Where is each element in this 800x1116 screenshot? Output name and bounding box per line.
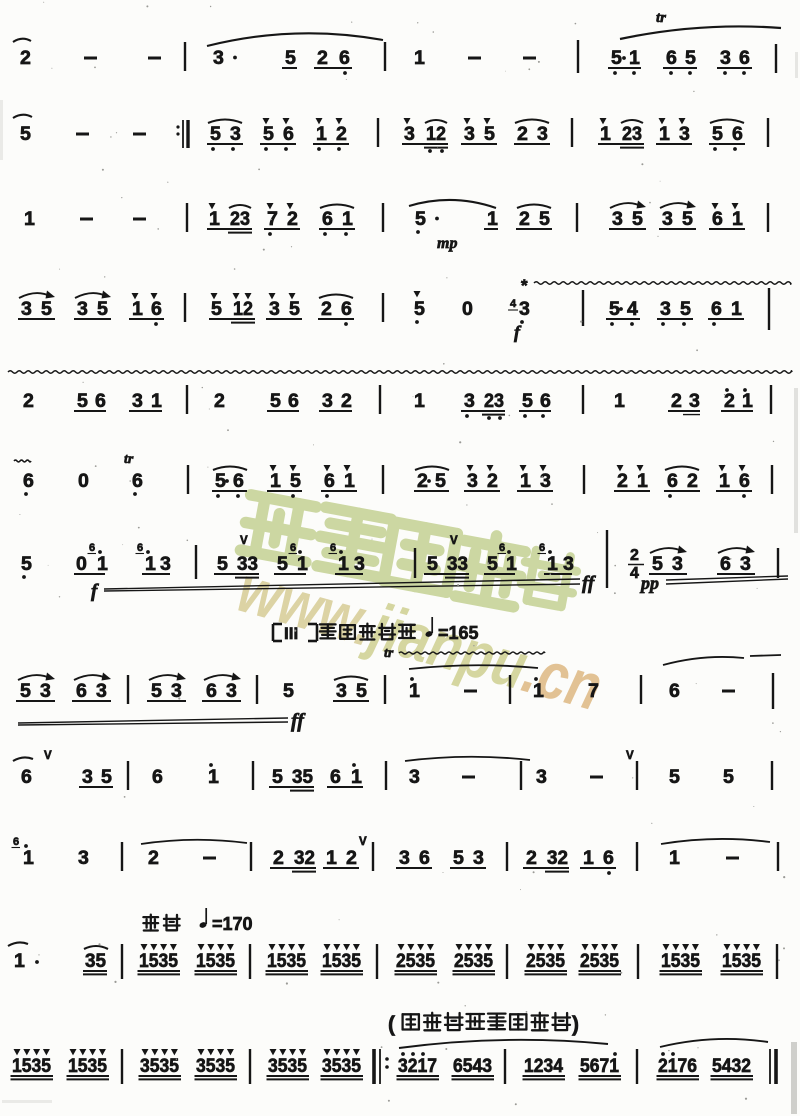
svg-text:5671: 5671 xyxy=(580,1055,619,1077)
svg-text:6: 6 xyxy=(21,766,32,788)
svg-text:3535: 3535 xyxy=(268,1055,307,1077)
svg-text:III: III xyxy=(284,624,298,643)
svg-text:3535: 3535 xyxy=(196,1055,235,1077)
svg-text:3: 3 xyxy=(537,123,548,145)
svg-text:5: 5 xyxy=(682,208,693,230)
svg-text:1: 1 xyxy=(506,553,517,575)
svg-text:6: 6 xyxy=(739,47,750,69)
svg-text:1: 1 xyxy=(23,847,34,869)
svg-text:1: 1 xyxy=(316,123,327,145)
svg-text:1: 1 xyxy=(270,470,281,492)
svg-text:5: 5 xyxy=(21,553,32,575)
svg-text:tr: tr xyxy=(384,646,394,661)
svg-text:6: 6 xyxy=(206,680,217,702)
svg-text:1: 1 xyxy=(414,47,425,69)
svg-text:1: 1 xyxy=(24,208,35,230)
svg-text:1: 1 xyxy=(547,553,558,575)
svg-text:2176: 2176 xyxy=(658,1055,697,1077)
svg-text:5: 5 xyxy=(263,123,274,145)
svg-text:3: 3 xyxy=(78,847,89,869)
svg-text:0: 0 xyxy=(462,298,473,320)
svg-text:1535: 1535 xyxy=(267,950,306,972)
svg-text:6: 6 xyxy=(89,542,95,554)
svg-text:2: 2 xyxy=(23,390,34,412)
svg-text:3: 3 xyxy=(404,123,415,145)
svg-text:3: 3 xyxy=(213,47,224,69)
svg-text:6: 6 xyxy=(666,47,677,69)
svg-text:2: 2 xyxy=(517,123,528,145)
svg-text:5: 5 xyxy=(356,680,367,702)
svg-text:1: 1 xyxy=(659,123,670,145)
svg-text:5: 5 xyxy=(272,766,283,788)
svg-text:3: 3 xyxy=(563,553,574,575)
svg-text:5: 5 xyxy=(77,390,88,412)
svg-text:5: 5 xyxy=(277,553,288,575)
svg-text:3: 3 xyxy=(409,766,420,788)
svg-text:1535: 1535 xyxy=(12,1055,51,1077)
svg-text:1: 1 xyxy=(151,390,162,412)
svg-text:6: 6 xyxy=(76,680,87,702)
svg-text:6: 6 xyxy=(23,470,34,492)
svg-text:1: 1 xyxy=(326,847,337,869)
svg-text:2: 2 xyxy=(273,847,284,869)
svg-text:2: 2 xyxy=(148,847,159,869)
svg-text:2: 2 xyxy=(417,470,428,492)
svg-text:1535: 1535 xyxy=(322,950,361,972)
svg-text:5: 5 xyxy=(151,680,162,702)
svg-text:5: 5 xyxy=(97,298,108,320)
svg-text:6: 6 xyxy=(330,766,341,788)
svg-text:=165: =165 xyxy=(438,623,479,643)
svg-text:5: 5 xyxy=(427,553,438,575)
svg-text:5: 5 xyxy=(453,847,464,869)
svg-text:(: ( xyxy=(388,1013,395,1036)
svg-text:5: 5 xyxy=(289,298,300,320)
svg-text:5: 5 xyxy=(539,208,550,230)
svg-text:3: 3 xyxy=(672,553,683,575)
svg-text:6: 6 xyxy=(540,390,551,412)
svg-text:1: 1 xyxy=(583,847,594,869)
svg-text:2: 2 xyxy=(630,547,639,564)
svg-text:5: 5 xyxy=(723,766,734,788)
svg-text:): ) xyxy=(572,1013,579,1036)
svg-text:1: 1 xyxy=(637,470,648,492)
svg-text:=170: =170 xyxy=(212,914,253,934)
svg-text:1: 1 xyxy=(487,208,498,230)
svg-text:6: 6 xyxy=(720,553,731,575)
svg-text:V: V xyxy=(450,535,458,547)
svg-text:5432: 5432 xyxy=(712,1055,751,1077)
svg-text:3: 3 xyxy=(132,390,143,412)
svg-text:1: 1 xyxy=(208,766,219,788)
svg-text:5: 5 xyxy=(270,390,281,412)
svg-text:*: * xyxy=(521,276,528,295)
svg-text:3: 3 xyxy=(82,766,93,788)
svg-text:6: 6 xyxy=(539,542,545,554)
svg-text:5: 5 xyxy=(217,553,228,575)
svg-text:2: 2 xyxy=(519,208,530,230)
svg-text:3: 3 xyxy=(464,123,475,145)
svg-text:35: 35 xyxy=(85,950,106,972)
svg-text:5: 5 xyxy=(484,123,495,145)
svg-text:32: 32 xyxy=(294,847,315,869)
svg-text:4: 4 xyxy=(630,565,639,582)
svg-text:6: 6 xyxy=(341,298,352,320)
svg-text:33: 33 xyxy=(237,553,258,575)
svg-text:1535: 1535 xyxy=(722,950,761,972)
svg-text:3: 3 xyxy=(21,298,32,320)
svg-text:6: 6 xyxy=(132,470,143,492)
svg-text:5: 5 xyxy=(487,553,498,575)
svg-text:3: 3 xyxy=(612,208,623,230)
svg-text:3: 3 xyxy=(399,847,410,869)
svg-text:1: 1 xyxy=(414,390,425,412)
svg-text:6: 6 xyxy=(739,470,750,492)
svg-text:2: 2 xyxy=(20,47,31,69)
svg-text:1: 1 xyxy=(731,298,742,320)
svg-text:3: 3 xyxy=(519,298,530,320)
svg-text:3: 3 xyxy=(354,553,365,575)
svg-text:5: 5 xyxy=(632,208,643,230)
svg-text:6: 6 xyxy=(288,390,299,412)
svg-text:5: 5 xyxy=(414,298,425,320)
svg-text:1535: 1535 xyxy=(661,950,700,972)
svg-text:1: 1 xyxy=(600,123,611,145)
svg-text:6: 6 xyxy=(290,542,296,554)
svg-text:0: 0 xyxy=(78,470,89,492)
svg-text:4: 4 xyxy=(627,298,638,320)
svg-text:1: 1 xyxy=(409,680,420,702)
svg-text:4: 4 xyxy=(510,298,517,310)
svg-text:6: 6 xyxy=(137,542,143,554)
svg-text:mp: mp xyxy=(437,235,457,252)
svg-text:2: 2 xyxy=(687,470,698,492)
svg-text:2535: 2535 xyxy=(526,950,565,972)
svg-text:6: 6 xyxy=(603,847,614,869)
svg-text:3: 3 xyxy=(269,298,280,320)
svg-text:3: 3 xyxy=(336,680,347,702)
svg-text:6: 6 xyxy=(667,470,678,492)
svg-text:5: 5 xyxy=(685,47,696,69)
svg-text:5: 5 xyxy=(609,298,620,320)
svg-text:1: 1 xyxy=(342,208,353,230)
svg-text:3: 3 xyxy=(467,470,478,492)
svg-text:3: 3 xyxy=(226,680,237,702)
svg-text:5: 5 xyxy=(290,470,301,492)
svg-text:3: 3 xyxy=(230,123,241,145)
svg-text:1: 1 xyxy=(732,208,743,230)
svg-text:32: 32 xyxy=(547,847,568,869)
svg-text:1: 1 xyxy=(344,470,355,492)
svg-text:6: 6 xyxy=(732,123,743,145)
svg-text:2: 2 xyxy=(287,208,298,230)
svg-text:6: 6 xyxy=(324,470,335,492)
svg-text:2: 2 xyxy=(724,390,735,412)
svg-text:6: 6 xyxy=(419,847,430,869)
svg-text:tr: tr xyxy=(124,452,134,467)
svg-text:1: 1 xyxy=(669,847,680,869)
svg-text:5: 5 xyxy=(611,47,622,69)
svg-text:1535: 1535 xyxy=(68,1055,107,1077)
svg-text:6: 6 xyxy=(711,298,722,320)
svg-text:12: 12 xyxy=(233,298,253,320)
svg-text:V: V xyxy=(44,750,52,762)
svg-text:2: 2 xyxy=(341,390,352,412)
svg-text:1535: 1535 xyxy=(139,950,178,972)
svg-text:3: 3 xyxy=(662,208,673,230)
svg-text:6: 6 xyxy=(330,542,336,554)
svg-text:6: 6 xyxy=(322,208,333,230)
svg-text:7: 7 xyxy=(588,680,599,702)
svg-text:23: 23 xyxy=(484,390,504,412)
svg-text:6: 6 xyxy=(339,47,350,69)
svg-text:1: 1 xyxy=(132,298,143,320)
svg-text:5: 5 xyxy=(20,123,31,145)
svg-text:3: 3 xyxy=(473,847,484,869)
svg-text:3217: 3217 xyxy=(398,1055,437,1077)
svg-text:5: 5 xyxy=(210,123,221,145)
svg-text:5: 5 xyxy=(669,766,680,788)
svg-text:6: 6 xyxy=(151,298,162,320)
svg-text:2: 2 xyxy=(487,470,498,492)
svg-text:3: 3 xyxy=(740,553,751,575)
svg-text:6: 6 xyxy=(13,836,19,848)
svg-text:5: 5 xyxy=(712,123,723,145)
svg-text:3: 3 xyxy=(464,390,475,412)
svg-text:3: 3 xyxy=(160,553,171,575)
svg-text:23: 23 xyxy=(230,208,250,230)
svg-text:3535: 3535 xyxy=(322,1055,361,1077)
svg-text:2: 2 xyxy=(336,123,347,145)
svg-text:5: 5 xyxy=(522,390,533,412)
svg-text:0: 0 xyxy=(76,553,87,575)
svg-text:5: 5 xyxy=(680,298,691,320)
svg-text:1: 1 xyxy=(614,390,625,412)
svg-text:1234: 1234 xyxy=(524,1055,563,1077)
svg-text:23: 23 xyxy=(622,123,642,145)
svg-text:5: 5 xyxy=(285,47,296,69)
svg-text:1: 1 xyxy=(719,470,730,492)
svg-text:6: 6 xyxy=(95,390,106,412)
svg-text:2: 2 xyxy=(671,390,682,412)
svg-text:5: 5 xyxy=(215,470,226,492)
svg-text:V: V xyxy=(626,750,634,762)
svg-text:3: 3 xyxy=(679,123,690,145)
svg-text:pp: pp xyxy=(639,573,659,593)
svg-text:6: 6 xyxy=(152,766,163,788)
svg-text:2: 2 xyxy=(526,847,537,869)
svg-text:1: 1 xyxy=(533,680,544,702)
svg-text:5: 5 xyxy=(101,766,112,788)
svg-text:33: 33 xyxy=(447,553,468,575)
svg-text:3: 3 xyxy=(660,298,671,320)
svg-text:2: 2 xyxy=(214,390,225,412)
svg-text:2: 2 xyxy=(346,847,357,869)
svg-text:6: 6 xyxy=(712,208,723,230)
svg-text:12: 12 xyxy=(426,123,446,145)
svg-text:6: 6 xyxy=(283,123,294,145)
svg-text:1: 1 xyxy=(97,553,108,575)
svg-text:3: 3 xyxy=(40,680,51,702)
svg-text:5: 5 xyxy=(41,298,52,320)
svg-text:2: 2 xyxy=(617,470,628,492)
svg-text:1: 1 xyxy=(351,766,362,788)
svg-text:2: 2 xyxy=(321,298,332,320)
svg-text:3: 3 xyxy=(689,390,700,412)
svg-text:3: 3 xyxy=(720,47,731,69)
svg-text:5: 5 xyxy=(415,208,426,230)
svg-text:6: 6 xyxy=(233,470,244,492)
svg-text:2535: 2535 xyxy=(396,950,435,972)
svg-text:5: 5 xyxy=(283,680,294,702)
svg-text:3: 3 xyxy=(96,680,107,702)
svg-text:5: 5 xyxy=(435,470,446,492)
svg-text:3: 3 xyxy=(540,470,551,492)
svg-text:ff: ff xyxy=(582,573,596,594)
svg-text:6543: 6543 xyxy=(453,1055,492,1077)
svg-text:7: 7 xyxy=(267,208,278,230)
svg-text:1: 1 xyxy=(209,208,220,230)
svg-text:35: 35 xyxy=(292,766,313,788)
svg-text:2535: 2535 xyxy=(454,950,493,972)
svg-text:6: 6 xyxy=(669,680,680,702)
svg-text:5: 5 xyxy=(211,298,222,320)
svg-text:6: 6 xyxy=(499,542,505,554)
svg-text:3: 3 xyxy=(322,390,333,412)
svg-text:1: 1 xyxy=(297,553,308,575)
svg-text:1: 1 xyxy=(742,390,753,412)
svg-text:1: 1 xyxy=(629,47,640,69)
svg-text:2535: 2535 xyxy=(580,950,619,972)
svg-text:1: 1 xyxy=(520,470,531,492)
svg-text:5: 5 xyxy=(20,680,31,702)
svg-text:5: 5 xyxy=(652,553,663,575)
svg-text:1535: 1535 xyxy=(196,950,235,972)
svg-text:3535: 3535 xyxy=(140,1055,179,1077)
svg-text:1: 1 xyxy=(338,553,349,575)
svg-text:V: V xyxy=(359,836,367,848)
svg-text:2: 2 xyxy=(317,47,328,69)
svg-text:3: 3 xyxy=(77,298,88,320)
svg-text:V: V xyxy=(240,535,248,547)
svg-text:1: 1 xyxy=(145,553,156,575)
svg-text:1: 1 xyxy=(14,950,25,972)
svg-text:3: 3 xyxy=(536,766,547,788)
svg-text:tr: tr xyxy=(656,10,666,26)
